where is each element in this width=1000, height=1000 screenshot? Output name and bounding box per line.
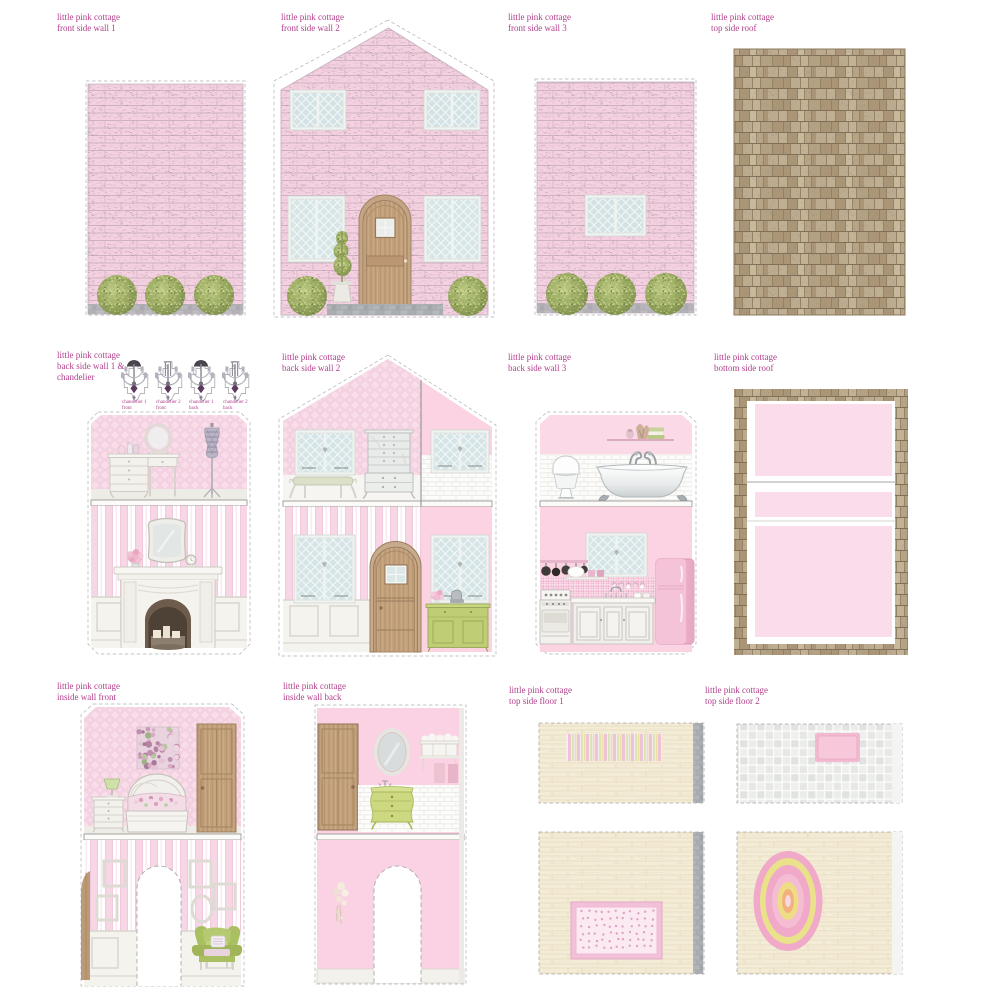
svg-text:little pink cottage: little pink cottage <box>508 352 571 362</box>
svg-text:front: front <box>122 406 132 411</box>
svg-text:chandelier 1: chandelier 1 <box>122 400 147 405</box>
svg-text:inside wall front: inside wall front <box>57 692 116 702</box>
svg-text:front side wall 3: front side wall 3 <box>508 23 567 33</box>
svg-text:top side roof: top side roof <box>711 23 757 33</box>
svg-text:top side floor 2: top side floor 2 <box>705 696 760 706</box>
svg-text:back side wall 1 &: back side wall 1 & <box>57 361 124 371</box>
svg-text:little pink cottage: little pink cottage <box>282 352 345 362</box>
svg-text:inside wall back: inside wall back <box>283 692 342 702</box>
svg-text:front: front <box>156 406 166 411</box>
svg-text:little pink cottage: little pink cottage <box>57 681 120 691</box>
svg-text:chandelier 1: chandelier 1 <box>189 400 214 405</box>
svg-text:little pink cottage: little pink cottage <box>509 685 572 695</box>
svg-text:top side floor 1: top side floor 1 <box>509 696 564 706</box>
svg-text:little pink cottage: little pink cottage <box>508 12 571 22</box>
svg-text:chandelier 2: chandelier 2 <box>156 400 181 405</box>
svg-text:front side wall 2: front side wall 2 <box>281 23 340 33</box>
svg-text:chandelier: chandelier <box>57 372 94 382</box>
svg-text:bottom side roof: bottom side roof <box>714 363 774 373</box>
svg-text:little pink cottage: little pink cottage <box>714 352 777 362</box>
svg-text:little pink cottage: little pink cottage <box>57 350 120 360</box>
svg-text:back side wall 2: back side wall 2 <box>282 363 340 373</box>
svg-text:little pink cottage: little pink cottage <box>711 12 774 22</box>
svg-text:chandelier 2: chandelier 2 <box>223 400 248 405</box>
svg-text:little pink cottage: little pink cottage <box>281 12 344 22</box>
svg-text:back side wall 3: back side wall 3 <box>508 363 567 373</box>
svg-text:little pink cottage: little pink cottage <box>57 12 120 22</box>
svg-text:front side wall 1: front side wall 1 <box>57 23 116 33</box>
svg-text:back: back <box>189 406 199 411</box>
svg-text:little pink cottage: little pink cottage <box>283 681 346 691</box>
svg-text:little pink cottage: little pink cottage <box>705 685 768 695</box>
svg-text:back: back <box>223 406 233 411</box>
